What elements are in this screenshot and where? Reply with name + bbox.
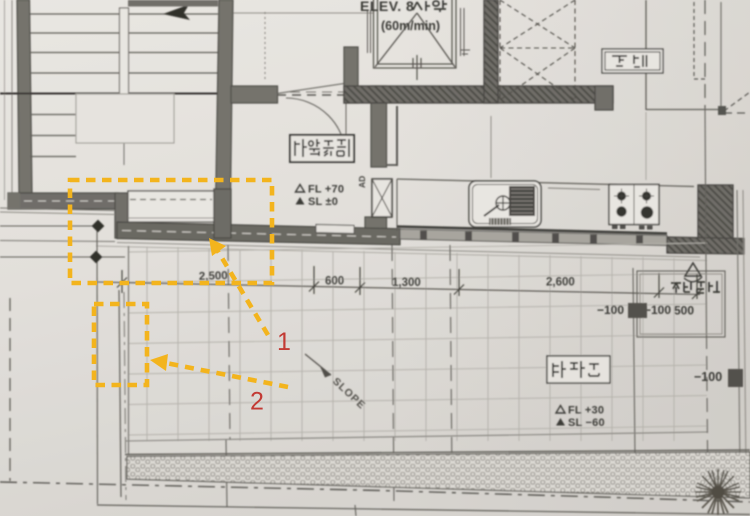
svg-text:2: 2 [250,388,264,416]
svg-text:1: 1 [277,328,291,356]
